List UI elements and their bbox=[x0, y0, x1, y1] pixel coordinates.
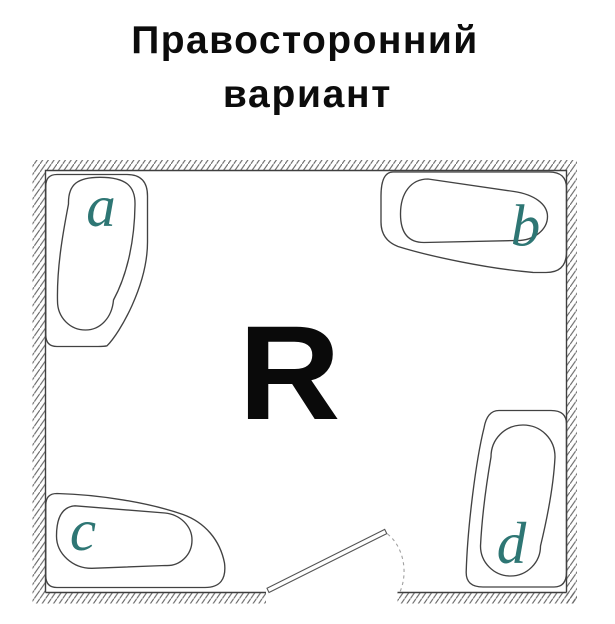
svg-text:вариант: вариант bbox=[223, 73, 392, 116]
svg-text:R: R bbox=[239, 299, 341, 448]
svg-text:a: a bbox=[86, 173, 116, 239]
svg-text:b: b bbox=[511, 193, 541, 259]
svg-text:d: d bbox=[497, 510, 527, 576]
svg-text:Правосторонний: Правосторонний bbox=[131, 19, 478, 62]
svg-text:c: c bbox=[70, 497, 96, 563]
